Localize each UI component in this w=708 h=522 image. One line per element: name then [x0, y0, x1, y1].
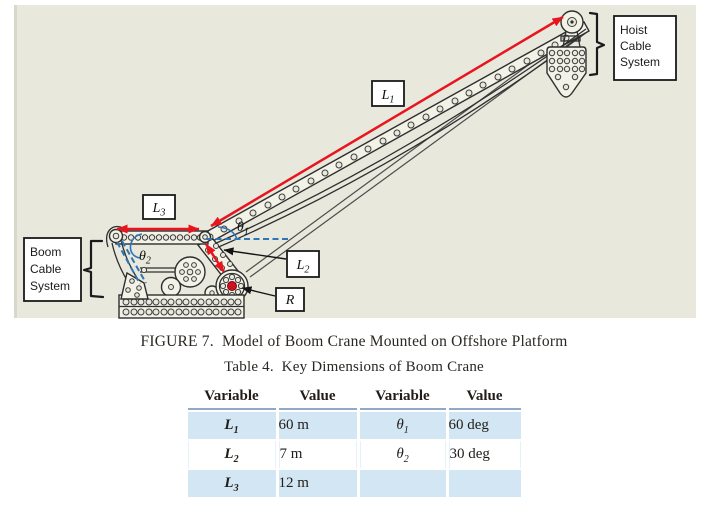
var-symbol: θ: [396, 417, 403, 433]
L3-label: L: [152, 201, 161, 216]
label-box-L2: L2: [287, 251, 319, 277]
cell-value-L1: 60 m: [279, 412, 357, 439]
winch-center-R: [228, 282, 237, 291]
boom-crane-figure: L1 L3 L2 R θ1 θ2 HoistCableSystem BoomCa…: [0, 0, 708, 324]
boom-callout-line1: Boom: [30, 245, 61, 259]
document-page: L1 L3 L2 R θ1 θ2 HoistCableSystem BoomCa…: [0, 0, 708, 499]
header-variable-1: Variable: [188, 387, 276, 410]
hoist-callout-line2: Cable: [620, 39, 652, 53]
hoist-callout-box: HoistCableSystem: [614, 16, 676, 80]
cell-value-L3: 12 m: [279, 470, 357, 497]
table-caption: Table 4. Key Dimensions of Boom Crane: [0, 359, 708, 376]
L3-subscript: 3: [159, 208, 165, 219]
theta1-subscript: 1: [244, 227, 249, 238]
boom-callout-line3: System: [30, 279, 70, 293]
cell-variable-theta1: θ1: [360, 412, 446, 439]
var-subscript: 2: [404, 454, 409, 465]
header-variable-2: Variable: [360, 387, 446, 410]
label-box-R: R: [276, 288, 304, 311]
table-header-row: Variable Value Variable Value: [188, 387, 521, 410]
cell-value-empty: [449, 470, 521, 497]
L1-subscript: 1: [389, 95, 394, 106]
boom-callout-box: BoomCableSystem: [24, 238, 81, 301]
cell-variable-L1: L1: [188, 412, 276, 439]
table-row: L1 60 m θ1 60 deg: [188, 412, 521, 439]
cell-variable-theta2: θ2: [360, 441, 446, 468]
figure-left-edge: [14, 5, 17, 318]
var-symbol: L: [224, 446, 233, 462]
cell-variable-empty: [360, 470, 446, 497]
label-box-L1: L1: [372, 81, 404, 106]
var-subscript: 2: [234, 454, 239, 465]
header-value-2: Value: [449, 387, 521, 410]
label-box-L3: L3: [143, 195, 175, 219]
var-subscript: 3: [234, 483, 239, 494]
var-symbol: L: [224, 475, 233, 491]
cell-value-theta1: 60 deg: [449, 412, 521, 439]
var-subscript: 1: [404, 425, 409, 436]
L2-subscript: 2: [304, 265, 309, 276]
L1-label: L: [381, 88, 390, 103]
pivot-joint: [200, 232, 211, 243]
cell-value-theta2: 30 deg: [449, 441, 521, 468]
L2-label: L: [296, 258, 305, 273]
table-row: L3 12 m: [188, 470, 521, 497]
tip-pulley: [561, 11, 583, 33]
cell-value-L2: 7 m: [279, 441, 357, 468]
top-beam-L3: [116, 231, 208, 244]
dimensions-table: Variable Value Variable Value L1 60 m θ1…: [185, 385, 524, 499]
hoist-callout-line1: Hoist: [620, 23, 648, 37]
svg-text:R: R: [285, 293, 295, 308]
header-value-1: Value: [279, 387, 357, 410]
var-symbol: θ: [396, 446, 403, 462]
cell-variable-L3: L3: [188, 470, 276, 497]
var-symbol: L: [224, 417, 233, 433]
var-subscript: 1: [234, 425, 239, 436]
R-label: R: [285, 293, 295, 308]
theta2-subscript: 2: [146, 256, 151, 267]
figure-caption: FIGURE 7. Model of Boom Crane Mounted on…: [0, 333, 708, 351]
hoist-callout-line3: System: [620, 55, 660, 69]
boom-callout-line2: Cable: [30, 262, 62, 276]
cell-variable-L2: L2: [188, 441, 276, 468]
table-row: L2 7 m θ2 30 deg: [188, 441, 521, 468]
